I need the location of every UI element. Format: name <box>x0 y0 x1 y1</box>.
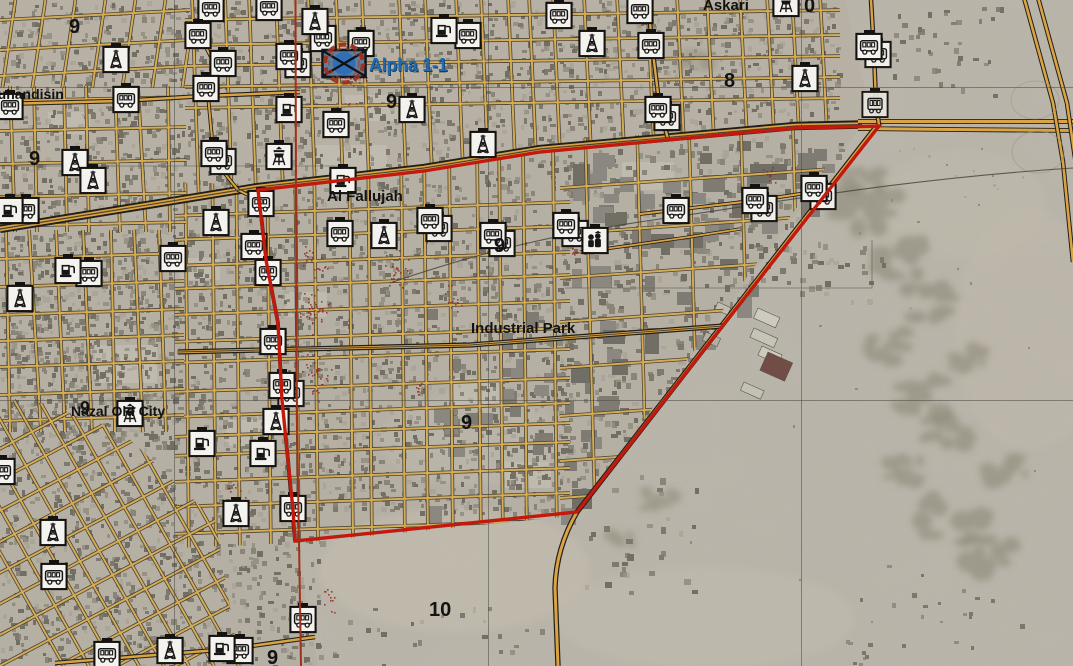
svg-text:9: 9 <box>80 398 90 418</box>
svg-text:10: 10 <box>429 599 451 621</box>
svg-text:9: 9 <box>494 235 505 257</box>
svg-text:8: 8 <box>724 70 735 92</box>
svg-text:0: 0 <box>804 0 815 17</box>
svg-text:9: 9 <box>29 148 40 170</box>
svg-text:Alpha 1-1: Alpha 1-1 <box>369 55 448 75</box>
svg-text:9: 9 <box>267 647 278 666</box>
svg-text:Muhandisin: Muhandisin <box>0 86 64 102</box>
svg-text:9: 9 <box>69 16 80 38</box>
svg-text:9: 9 <box>386 91 397 113</box>
svg-text:Industrial Park: Industrial Park <box>471 320 576 337</box>
svg-text:Askari: Askari <box>703 0 749 14</box>
svg-text:9: 9 <box>461 412 472 434</box>
svg-text:Al Fallujah: Al Fallujah <box>327 188 403 205</box>
